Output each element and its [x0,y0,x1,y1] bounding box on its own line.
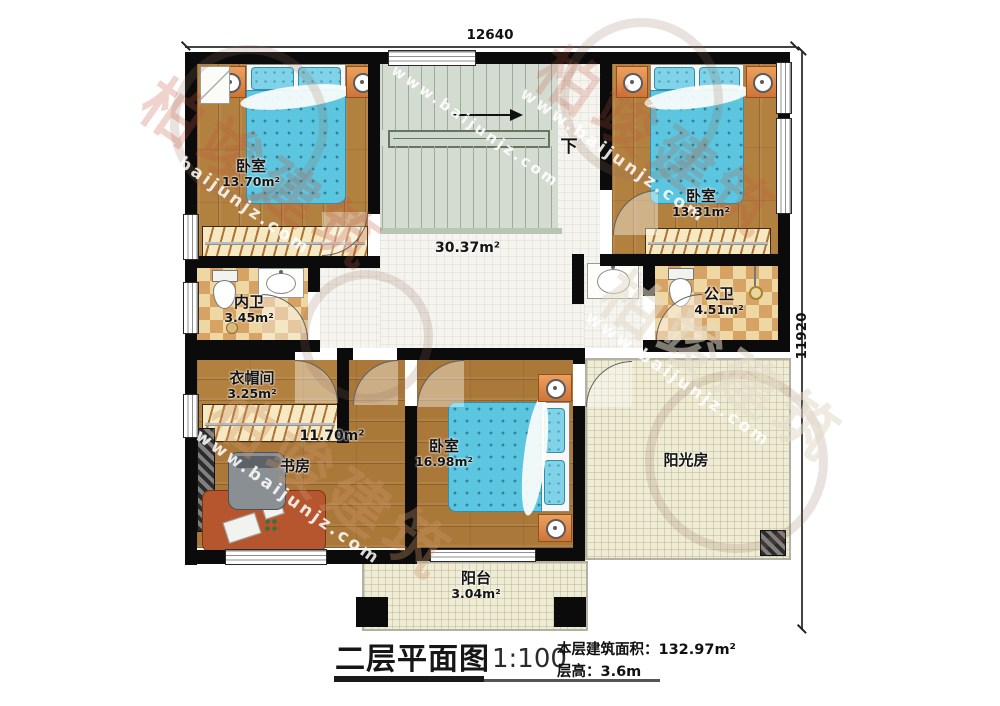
watermark-logo [300,270,433,403]
room-area: 3.04m² [430,587,522,601]
window-stairwell [388,50,476,66]
window-left-2 [183,282,199,334]
stair-arrow-icon [510,109,523,121]
room-label-bath-public: 公卫 4.51m² [676,286,762,318]
room-name: 公卫 [676,286,762,303]
nightstand-icon [538,514,572,542]
room-label-study: 书房 [253,458,337,475]
floor-plan-canvas: 柏竣建筑 www.baijunjz.com 柏竣建筑 www.baijunjz.… [0,0,1000,706]
dimension-text: 11920 [794,313,810,360]
wall-study-bedroom [405,406,417,554]
nightstand-icon [538,374,572,402]
stair-flight-top [382,64,556,130]
room-label-study-area: 11.70m² [288,428,376,444]
floor-area-text: 本层建筑面积：132.97m² [557,638,736,659]
room-label-balcony: 阳台 3.04m² [430,570,522,602]
room-label-bedroom-topleft: 卧室 13.70m² [205,158,297,190]
window-left-1 [183,214,199,260]
wall-bedroom-tl-south [185,256,380,268]
wall-bath-public-west [643,266,655,296]
wall-bedroom-tr-south [600,254,790,266]
sliding-door-balcony [430,549,536,562]
room-area: 13.31m² [655,205,747,219]
stair-direction-line [452,114,510,116]
drawing-scale-text: 1:100 [492,644,567,674]
dimension-top-value: 12640 [452,27,528,43]
wall-bath-inner-east [308,268,320,292]
floor-area-value: 本层建筑面积：132.97m² [557,642,736,658]
stairs-down-text: 下 [561,137,578,157]
wall-hall-east-short [572,254,584,304]
room-name: 卧室 [398,438,490,455]
lamp-cord-icon [754,266,756,286]
drawing-title: 二层平面图 [335,634,490,678]
window-left-3 [183,394,199,438]
window-right-1 [776,62,792,114]
room-label-sunroom: 阳光房 [638,452,734,469]
floor-height-text: 层高：3.6m [557,660,641,681]
sink-icon-hallway [587,263,639,299]
dimension-text: 12640 [467,27,514,43]
wall-bedroom-sunroom-b [573,406,585,560]
room-area: 30.37m² [435,240,500,256]
room-label-hall-area: 30.37m² [425,240,510,256]
room-area: 4.51m² [676,303,762,317]
stairwell [380,64,558,234]
wall-mid-horizontal-a [185,348,295,360]
room-label-cloakroom: 衣帽间 3.25m² [203,370,301,402]
wall-bedroom-tl-east [368,64,380,214]
room-label-bath-inner: 内卫 3.45m² [206,294,292,326]
floor-height-value: 层高：3.6m [557,664,641,680]
balcony-column [554,597,586,627]
stairs-down-label: 下 [552,132,586,157]
room-area: 16.98m² [398,455,490,469]
room-name: 卧室 [655,188,747,205]
window-right-2 [776,118,792,214]
balcony-column [356,597,388,627]
room-name: 阳光房 [638,452,734,469]
nightstand-icon [746,66,778,98]
room-name: 阳台 [430,570,522,587]
wardrobe-icon-topright [645,228,771,256]
title-underline-thick [334,676,484,682]
room-area: 3.45m² [206,311,292,325]
plant-icon [264,518,280,534]
room-name: 卧室 [205,158,297,175]
room-area: 13.70m² [205,175,297,189]
room-name: 内卫 [206,294,292,311]
wall-bedroom-sunroom-a [573,348,585,364]
room-label-bedroom-topright: 卧室 13.31m² [655,188,747,220]
drawing-title-text: 二层平面图 [335,642,490,677]
stair-flight-bottom [382,146,556,228]
window-study-south [225,549,327,565]
room-area: 11.70m² [299,428,364,444]
room-name: 书房 [253,458,337,475]
wall-bath-public-south [643,340,790,352]
room-name: 衣帽间 [203,370,301,387]
room-area: 3.25m² [203,387,301,401]
stair-edge [380,228,562,234]
dimension-right-value: 11920 [794,300,810,372]
room-label-bedroom-bottom: 卧室 16.98m² [398,438,490,470]
drawing-scale: 1:100 [492,644,567,674]
